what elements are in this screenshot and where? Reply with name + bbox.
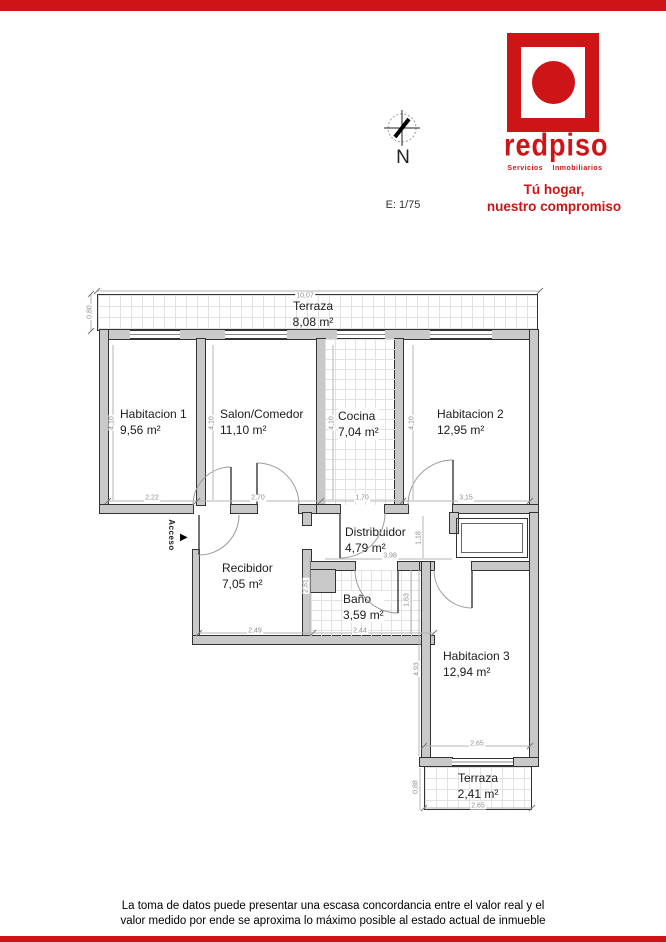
top-red-bar — [0, 0, 666, 11]
dimension-label: 0,80 — [87, 304, 94, 320]
compass-north-label: N — [390, 147, 416, 169]
floor-plan-page: redpiso Servicios Inmobiliarios Tú hogar… — [0, 0, 666, 942]
room-label-salon-comedor: Salon/Comedor 11,10 m² — [220, 406, 303, 438]
dimension-label: 2,22 — [144, 495, 160, 502]
wall-segment — [303, 550, 311, 644]
window — [452, 758, 514, 766]
room-area: 8,08 m² — [253, 314, 373, 330]
room-label-recibidor: Recibidor 7,05 m² — [222, 560, 273, 592]
wall-segment — [193, 636, 434, 644]
room-label-terraza-bottom: Terraza 2,41 m² — [430, 770, 526, 802]
room-label-habitacion-3: Habitacion 3 12,94 m² — [443, 648, 510, 680]
access-label: Acceso — [166, 512, 176, 558]
wall-segment — [385, 505, 408, 513]
room-label-habitacion-1: Habitacion 1 9,56 m² — [120, 406, 187, 438]
wardrobe-inner — [461, 523, 523, 553]
room-area: 12,95 m² — [437, 422, 504, 438]
room-label-cocina: Cocina 7,04 m² — [338, 408, 379, 440]
window — [430, 330, 492, 339]
wall-segment — [299, 505, 317, 513]
dimension-label: 1,63 — [404, 592, 411, 608]
dimension-label: 2,65 — [470, 803, 486, 810]
room-label-terraza-top: Terraza 8,08 m² — [253, 298, 373, 330]
wall-segment — [317, 505, 340, 513]
room-name: Baño — [343, 591, 384, 607]
dimension-label: 2,70 — [250, 495, 266, 502]
room-label-distribuidor: Distribuidor 4,79 m² — [345, 524, 406, 556]
tagline-line1: Tú hogar, — [524, 182, 585, 197]
room-name: Terraza — [430, 770, 526, 786]
dimension-label: 2,44 — [352, 628, 368, 635]
room-name: Cocina — [338, 408, 379, 424]
wall-segment — [395, 339, 403, 505]
brand-logo-text: redpiso — [504, 128, 606, 164]
room-name: Recibidor — [222, 560, 273, 576]
dimension-label: 4,93 — [414, 661, 421, 677]
room-area: 9,56 m² — [120, 422, 187, 438]
disclaimer-text: La toma de datos puede presentar una esc… — [0, 899, 666, 929]
room-name: Distribuidor — [345, 524, 406, 540]
duct-column — [311, 570, 335, 592]
wall-segment — [422, 562, 430, 758]
dimension-label: 4,10 — [329, 415, 336, 431]
bottom-red-bar — [0, 936, 666, 942]
dimension-label: 1,18 — [416, 530, 423, 546]
room-name: Habitacion 1 — [120, 406, 187, 422]
redpiso-logo-dot-icon — [532, 61, 575, 104]
room-label-bano: Baño 3,59 m² — [343, 591, 384, 623]
window — [225, 330, 287, 339]
room-name: Habitacion 3 — [443, 648, 510, 664]
room-name: Habitacion 2 — [437, 406, 504, 422]
dimension-label: 2,49 — [247, 628, 263, 635]
wall-segment — [420, 758, 452, 766]
tagline-line2: nuestro compromiso — [487, 199, 621, 214]
dimension-label: 3,15 — [458, 495, 474, 502]
room-name: Salon/Comedor — [220, 406, 303, 422]
window — [337, 330, 385, 339]
dimension-label: 10,07 — [295, 293, 315, 300]
scale-label: E: 1/75 — [368, 199, 438, 211]
dimension-label: 4,10 — [409, 415, 416, 431]
room-area: 12,94 m² — [443, 664, 510, 680]
wall-segment — [453, 505, 538, 513]
room-area: 2,41 m² — [430, 786, 526, 802]
wall-segment — [472, 562, 538, 570]
compass-icon — [384, 110, 420, 146]
dimension-label: 2,81 — [303, 578, 310, 594]
dimension-label: 3,98 — [382, 553, 398, 560]
disclaimer-line1: La toma de datos puede presentar una esc… — [122, 900, 545, 912]
brand-tagline: Tú hogar, nuestro compromiso — [468, 181, 640, 215]
room-area: 3,59 m² — [343, 607, 384, 623]
wall-segment — [231, 505, 257, 513]
brand-subtitle: Servicios Inmobiliarios — [498, 165, 612, 172]
dimension-label: 4,10 — [209, 415, 216, 431]
window — [130, 330, 180, 339]
disclaimer-line2: valor medido por ende se aproxima lo máx… — [120, 915, 545, 927]
dimension-label: 0,88 — [413, 779, 420, 795]
dimension-label: 4,10 — [109, 415, 116, 431]
wall-segment — [100, 330, 108, 513]
room-name: Terraza — [253, 298, 373, 314]
access-arrow-icon: ▶ — [180, 532, 188, 543]
room-area: 7,05 m² — [222, 576, 273, 592]
room-area: 11,10 m² — [220, 422, 303, 438]
wall-segment — [530, 513, 538, 758]
room-label-habitacion-2: Habitacion 2 12,95 m² — [437, 406, 504, 438]
wall-segment — [311, 562, 355, 570]
room-area: 7,04 m² — [338, 424, 379, 440]
wall-segment — [197, 339, 205, 505]
wall-segment — [193, 550, 199, 644]
wall-segment — [303, 513, 311, 525]
dimension-label: 2,65 — [469, 741, 485, 748]
dimension-label: 1,70 — [354, 495, 370, 502]
wall-segment — [100, 505, 193, 513]
wall-segment — [530, 330, 538, 513]
wall-segment — [317, 339, 325, 505]
wall-segment — [514, 758, 538, 766]
